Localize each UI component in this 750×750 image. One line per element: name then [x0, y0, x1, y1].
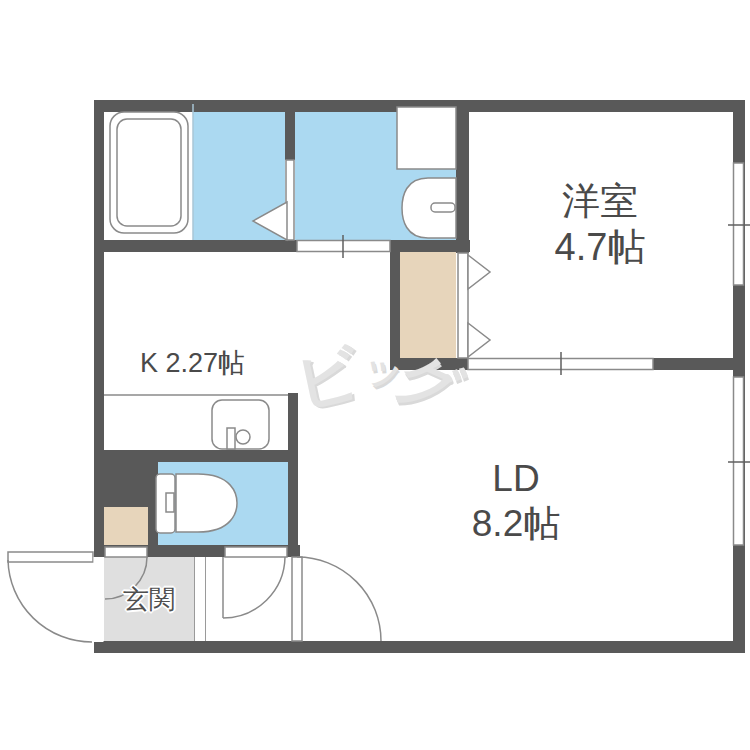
wall-kitchen-bottom	[94, 450, 298, 462]
wall-toilet-left	[148, 462, 158, 545]
entrance-door-arc	[8, 560, 92, 642]
floor-plan: 洋室 4.7帖 K 2.27帖 LD 8.2帖 玄関 ビッグ	[0, 0, 750, 750]
wall-block-left	[104, 462, 148, 507]
entrance-step-strip	[194, 557, 206, 643]
entrance-storage-floor	[104, 507, 148, 545]
bathtub-icon	[110, 112, 188, 233]
wall-bath-divider	[285, 104, 295, 160]
wall-mid-horizontal	[94, 240, 470, 252]
kitchen-label: K 2.27帖	[140, 345, 245, 381]
wall-toilet-bottom	[104, 545, 300, 557]
kitchen-faucet-icon	[227, 428, 235, 449]
wall-top	[94, 100, 745, 112]
watermark-char-1: ビ	[288, 330, 368, 425]
western-room-name: 洋室	[480, 178, 720, 224]
wall-left	[94, 100, 104, 557]
entrance-door-leaf	[8, 552, 93, 562]
bathtub-inner-icon	[117, 119, 181, 226]
wall-hall-stub	[288, 462, 298, 557]
kitchen-sink-icon	[212, 400, 269, 449]
entrance-label: 玄関	[104, 582, 194, 617]
wall-bottom	[94, 641, 745, 653]
closet-folding-door-icon-2	[468, 323, 490, 357]
ld-door-leaf	[292, 557, 302, 641]
wall-westernroom-left	[456, 100, 469, 253]
toilet-room-floor	[158, 462, 288, 545]
watermark-logo: ビッグ	[296, 336, 466, 420]
western-room-label: 洋室 4.7帖	[480, 178, 720, 270]
ld-door-arc	[297, 557, 381, 641]
entrance-opening	[94, 557, 104, 642]
kitchen-drain-icon	[236, 430, 250, 444]
toilet-door-arc	[223, 557, 285, 618]
living-dining-name: LD	[396, 456, 636, 501]
western-room-size: 4.7帖	[480, 224, 720, 270]
bath-door-leaf	[286, 160, 294, 240]
living-dining-size: 8.2帖	[396, 501, 636, 546]
wall-right	[733, 100, 745, 653]
washroom-floor	[295, 104, 456, 240]
bathroom-floor	[193, 104, 285, 240]
living-dining-label: LD 8.2帖	[396, 456, 636, 546]
